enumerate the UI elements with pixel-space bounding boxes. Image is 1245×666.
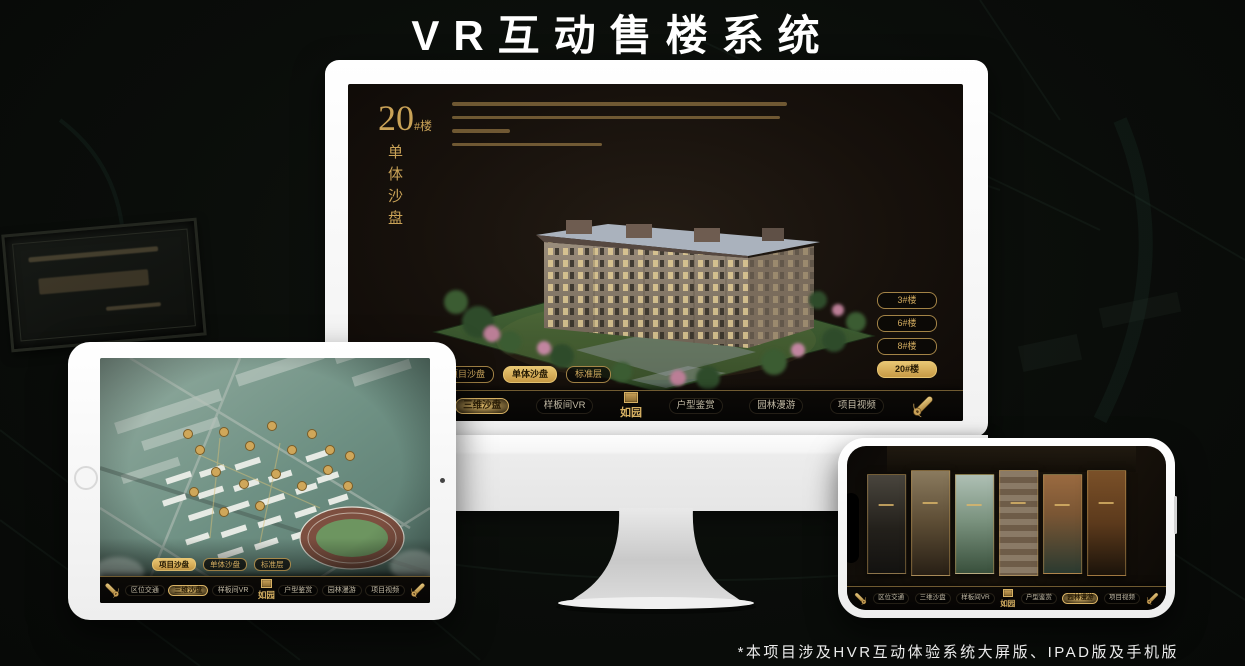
tab-project-sandbox[interactable]: 项目沙盘 (152, 558, 196, 572)
gallery-card-autumn-court[interactable] (1043, 474, 1082, 574)
phone-side-button[interactable] (1174, 496, 1177, 534)
floor-button-6[interactable]: 6#楼 (877, 315, 937, 332)
brand-logo: 如园 (620, 392, 642, 420)
scroll-menu-icon[interactable] (910, 393, 936, 419)
building-3d-view[interactable] (426, 150, 878, 392)
tablet-device: 项目沙盘 单体沙盘 标准层 区位交通 三维沙盘 样板间VR 如园 户型鉴赏 园林… (68, 342, 456, 620)
nav-item-unit-gallery[interactable]: 户型鉴赏 (1021, 593, 1057, 604)
tab-single-sandbox[interactable]: 单体沙盘 (203, 558, 247, 572)
intro-paragraph (452, 102, 787, 156)
nav-item-3d-sandbox[interactable]: 三维沙盘 (915, 593, 951, 604)
building-headline: 20#楼 单体沙盘 (378, 100, 432, 240)
headline-subtitle: 单体沙盘 (384, 144, 405, 240)
nav-item-showroom-vr[interactable]: 样板间VR (212, 585, 255, 596)
brand-logo: 如园 (1000, 589, 1015, 609)
nav-item-location-traffic[interactable]: 区位交通 (125, 585, 165, 596)
tablet-tab-group: 项目沙盘 单体沙盘 标准层 (152, 558, 291, 572)
nav-item-3d-sandbox[interactable]: 三维沙盘 (168, 585, 208, 596)
floor-button-group: 3#楼 6#楼 8#楼 20#楼 (877, 292, 937, 378)
scroll-menu-icon-left[interactable] (103, 581, 121, 599)
floor-button-20[interactable]: 20#楼 (877, 361, 937, 378)
scroll-menu-icon-right[interactable] (409, 581, 427, 599)
nav-item-garden-roam[interactable]: 园林漫游 (749, 398, 803, 414)
floor-button-3[interactable]: 3#楼 (877, 292, 937, 309)
nav-item-garden-roam[interactable]: 园林漫游 (322, 585, 362, 596)
tab-single-sandbox[interactable]: 单体沙盘 (503, 366, 557, 383)
phone-navbar: 区位交通 三维沙盘 样板间VR 如园 户型鉴赏 园林漫游 项目视频 (847, 586, 1166, 610)
tablet-screen: 项目沙盘 单体沙盘 标准层 区位交通 三维沙盘 样板间VR 如园 户型鉴赏 园林… (100, 358, 430, 603)
phone-screen: 区位交通 三维沙盘 样板间VR 如园 户型鉴赏 园林漫游 项目视频 (847, 446, 1166, 610)
floor-button-8[interactable]: 8#楼 (877, 338, 937, 355)
nav-item-project-video[interactable]: 项目视频 (830, 398, 884, 414)
page-title: VR互动售楼系统 (0, 2, 1245, 63)
monitor-tab-group: 项目沙盘 单体沙盘 标准层 (440, 366, 611, 383)
nav-item-project-video[interactable]: 项目视频 (1104, 593, 1140, 604)
gallery-card-interior[interactable] (867, 474, 906, 574)
scene-gallery (867, 470, 1126, 576)
nav-item-project-video[interactable]: 项目视频 (365, 585, 405, 596)
phone-device: 区位交通 三维沙盘 样板间VR 如园 户型鉴赏 园林漫游 项目视频 (838, 438, 1175, 618)
nav-item-location-traffic[interactable]: 区位交通 (873, 593, 909, 604)
nav-item-3d-sandbox[interactable]: 三维沙盘 (455, 398, 509, 414)
tablet-navbar: 区位交通 三维沙盘 样板间VR 如园 户型鉴赏 园林漫游 项目视频 (100, 576, 430, 603)
brand-logo: 如园 (258, 579, 275, 601)
scroll-menu-icon-right[interactable] (1145, 591, 1160, 606)
tab-standard-floor[interactable]: 标准层 (566, 366, 611, 383)
gallery-card-garden[interactable] (955, 474, 994, 574)
tablet-camera-icon (440, 478, 445, 483)
nav-item-garden-roam[interactable]: 园林漫游 (1062, 593, 1098, 604)
seal-icon (624, 392, 638, 403)
gallery-card-cabinet[interactable] (1087, 470, 1126, 576)
nav-item-unit-gallery[interactable]: 户型鉴赏 (669, 398, 723, 414)
seal-icon (261, 579, 272, 588)
nav-item-unit-gallery[interactable]: 户型鉴赏 (278, 585, 318, 596)
poster-canvas: VR互动售楼系统 20#楼 单体沙盘 (0, 0, 1245, 666)
brand-logo-text: 如园 (1000, 598, 1015, 609)
tab-standard-floor[interactable]: 标准层 (254, 558, 291, 572)
brand-logo-text: 如园 (620, 404, 642, 420)
background-certificate-plaque (1, 218, 207, 353)
tablet-home-button[interactable] (74, 466, 98, 490)
phone-notch (847, 493, 859, 563)
nav-item-showroom-vr[interactable]: 样板间VR (536, 398, 594, 414)
scroll-menu-icon-left[interactable] (853, 591, 868, 606)
building-number: 20 (378, 98, 414, 138)
gallery-card-building[interactable] (999, 470, 1038, 576)
footnote: *本项目涉及HVR互动体验系统大屏版、IPAD版及手机版 (738, 641, 1179, 662)
scene-roof-beam (887, 446, 1136, 472)
monitor-stand (546, 508, 766, 618)
seal-icon (1003, 589, 1013, 597)
building-number-suffix: #楼 (414, 119, 432, 133)
nav-item-showroom-vr[interactable]: 样板间VR (956, 593, 995, 604)
brand-logo-text: 如园 (258, 589, 275, 601)
gallery-card-showroom[interactable] (911, 470, 950, 576)
